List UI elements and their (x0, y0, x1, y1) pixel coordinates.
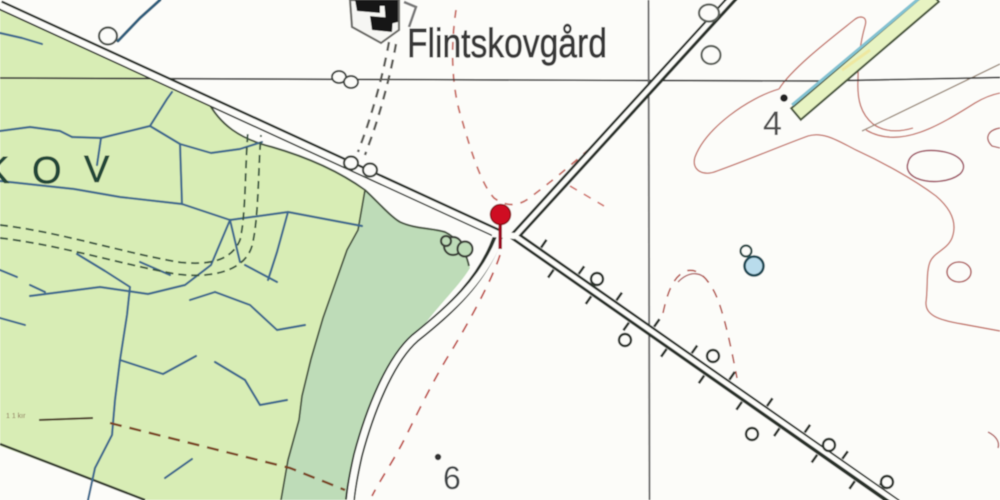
svg-text:4: 4 (763, 105, 782, 143)
svg-text:1 1 kır: 1 1 kır (6, 413, 26, 420)
svg-text:Flintskovgård: Flintskovgård (407, 20, 607, 66)
svg-text:O: O (32, 150, 62, 192)
svg-text:V: V (84, 149, 110, 191)
svg-text:6: 6 (443, 460, 461, 496)
svg-text:K: K (0, 150, 9, 192)
